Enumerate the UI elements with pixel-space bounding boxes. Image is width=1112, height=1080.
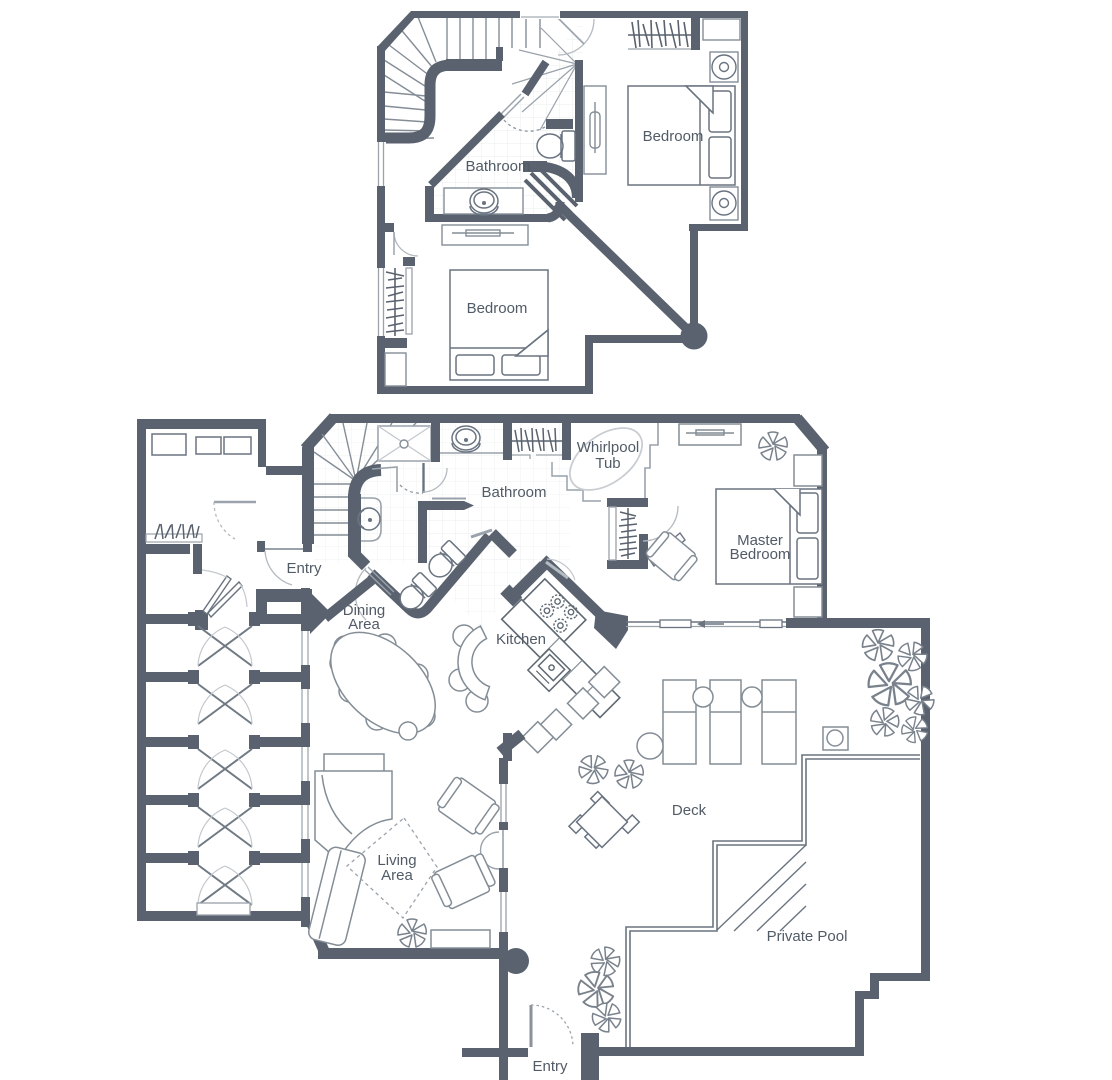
svg-text:Area: Area [348, 616, 380, 633]
svg-text:Bedroom: Bedroom [643, 128, 704, 145]
svg-text:Area: Area [381, 867, 413, 884]
svg-text:Kitchen: Kitchen [496, 631, 546, 648]
svg-text:Deck: Deck [672, 802, 707, 819]
svg-text:Bathroom: Bathroom [465, 158, 530, 175]
svg-text:Private Pool: Private Pool [767, 928, 848, 945]
svg-text:Bathroom: Bathroom [481, 484, 546, 501]
svg-text:Bedroom: Bedroom [467, 300, 528, 317]
svg-text:Whirlpool: Whirlpool [577, 439, 640, 456]
svg-text:Bedroom: Bedroom [730, 546, 791, 563]
svg-text:Entry: Entry [532, 1058, 568, 1075]
svg-text:Tub: Tub [595, 455, 620, 472]
